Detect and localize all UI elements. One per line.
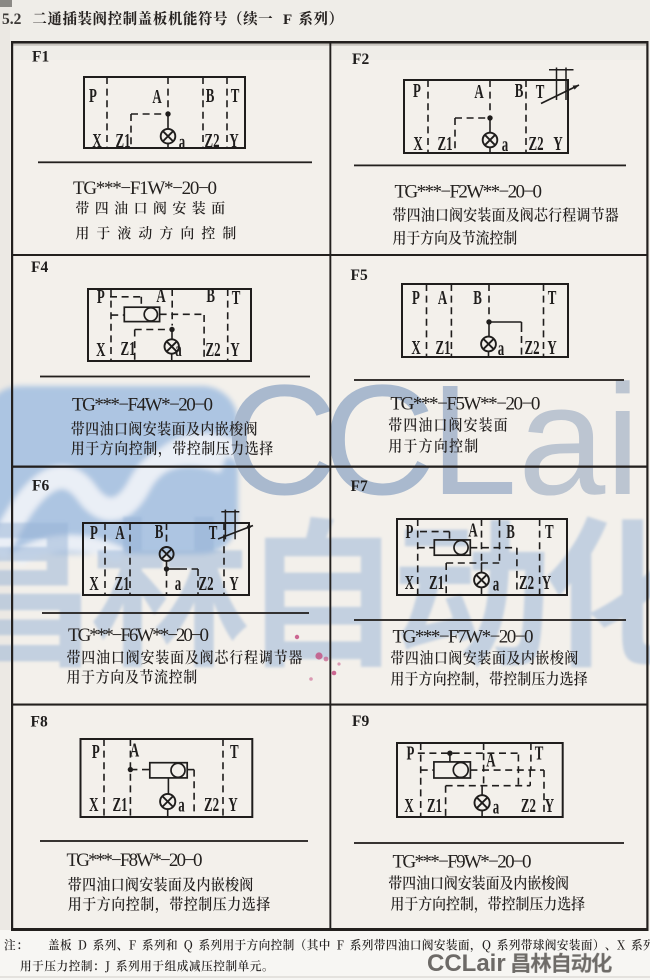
svg-text:a: a [502, 133, 509, 156]
svg-text:a: a [493, 573, 500, 596]
svg-text:P: P [92, 740, 100, 763]
svg-text:X: X [89, 793, 99, 816]
svg-text:Z1: Z1 [435, 336, 450, 359]
svg-text:Y: Y [228, 793, 238, 816]
svg-text:TG***−F8W*−20−0: TG***−F8W*−20−0 [67, 850, 203, 871]
svg-text:P: P [407, 742, 415, 765]
svg-text:Z2: Z2 [524, 336, 539, 359]
svg-text:TG***−F4W*−20−0: TG***−F4W*−20−0 [72, 395, 213, 416]
svg-text:X: X [413, 132, 423, 155]
svg-text:F: F [283, 12, 292, 28]
svg-text:TG***−F6W**−20−0: TG***−F6W**−20−0 [68, 625, 209, 646]
svg-text:B: B [155, 520, 164, 543]
svg-text:a: a [493, 796, 500, 819]
svg-text:X: X [411, 336, 421, 359]
svg-text:B: B [515, 79, 524, 102]
svg-text:P: P [413, 79, 421, 102]
svg-text:Z2: Z2 [521, 794, 536, 817]
svg-text:A: A [438, 286, 448, 309]
svg-text:F8: F8 [31, 714, 48, 731]
svg-text:a: a [175, 338, 182, 361]
svg-text:A: A [152, 85, 162, 108]
svg-text:T: T [209, 521, 218, 544]
svg-text:Y: Y [542, 571, 552, 594]
svg-text:C: C [224, 353, 337, 528]
svg-text:X: X [404, 794, 414, 817]
svg-text:F4: F4 [31, 259, 48, 276]
svg-text:P: P [90, 521, 98, 544]
svg-text:a: a [179, 131, 186, 154]
svg-text:Z2: Z2 [519, 571, 534, 594]
svg-text:Z2: Z2 [204, 793, 219, 816]
svg-text:5.2: 5.2 [2, 11, 22, 28]
svg-text:T: T [230, 740, 239, 763]
svg-text:A: A [115, 521, 125, 544]
svg-text:Z2: Z2 [198, 572, 213, 595]
svg-text:Z2: Z2 [528, 132, 543, 155]
svg-text:CCLair: CCLair [427, 950, 506, 977]
svg-text:X: X [405, 571, 415, 594]
svg-text:A: A [130, 739, 140, 762]
svg-text:a: a [178, 794, 185, 817]
svg-text:TG***−F5W**−20−0: TG***−F5W**−20−0 [390, 394, 540, 415]
svg-text:TG***−F9W*−20−0: TG***−F9W*−20−0 [393, 852, 532, 873]
svg-text:B: B [206, 84, 215, 107]
svg-text:P: P [412, 286, 420, 309]
svg-text:T: T [232, 286, 241, 309]
svg-text:B: B [506, 520, 515, 543]
svg-text:Z1: Z1 [437, 132, 452, 155]
svg-text:Z1: Z1 [114, 572, 129, 595]
svg-text:a: a [498, 337, 505, 360]
svg-text:Z1: Z1 [112, 793, 127, 816]
svg-text:Z2: Z2 [204, 129, 219, 152]
svg-text:X: X [92, 129, 102, 152]
svg-text:X: X [96, 338, 106, 361]
svg-text:F1: F1 [32, 49, 49, 66]
svg-text:P: P [89, 84, 97, 107]
svg-text:Z1: Z1 [120, 337, 135, 360]
svg-text:Z1: Z1 [115, 129, 130, 152]
svg-text:A: A [474, 80, 484, 103]
svg-text:A: A [468, 519, 478, 542]
svg-text:Y: Y [229, 129, 239, 152]
svg-text:T: T [545, 520, 554, 543]
svg-text:F5: F5 [351, 267, 368, 284]
svg-text:B: B [206, 284, 215, 307]
svg-text:F6: F6 [32, 478, 49, 495]
svg-text:Y: Y [545, 794, 555, 817]
svg-text:B: B [473, 286, 482, 309]
svg-text:X: X [89, 572, 99, 595]
svg-text:Z1: Z1 [427, 794, 442, 817]
svg-text:Y: Y [230, 338, 240, 361]
svg-text:Z2: Z2 [205, 338, 220, 361]
svg-text:Y: Y [547, 336, 557, 359]
svg-text:A: A [156, 284, 166, 307]
svg-text:T: T [536, 80, 545, 103]
svg-text:Y: Y [229, 572, 239, 595]
svg-text:P: P [405, 520, 413, 543]
svg-text:a: a [175, 572, 182, 595]
svg-text:T: T [548, 286, 557, 309]
svg-text:T: T [535, 742, 544, 765]
svg-text:P: P [97, 285, 105, 308]
svg-text:TG***−F2W**−20−0: TG***−F2W**−20−0 [395, 182, 543, 203]
svg-text:T: T [231, 84, 240, 107]
svg-text:TG***−F1W*−20−0: TG***−F1W*−20−0 [73, 178, 217, 199]
svg-text:Z1: Z1 [429, 571, 444, 594]
svg-text:Y: Y [553, 132, 563, 155]
svg-text:F9: F9 [352, 713, 369, 730]
svg-text:F7: F7 [351, 478, 368, 495]
svg-text:A: A [486, 749, 496, 772]
svg-text:TG***−F7W*−20−0: TG***−F7W*−20−0 [393, 627, 534, 648]
svg-text:F2: F2 [352, 51, 369, 68]
